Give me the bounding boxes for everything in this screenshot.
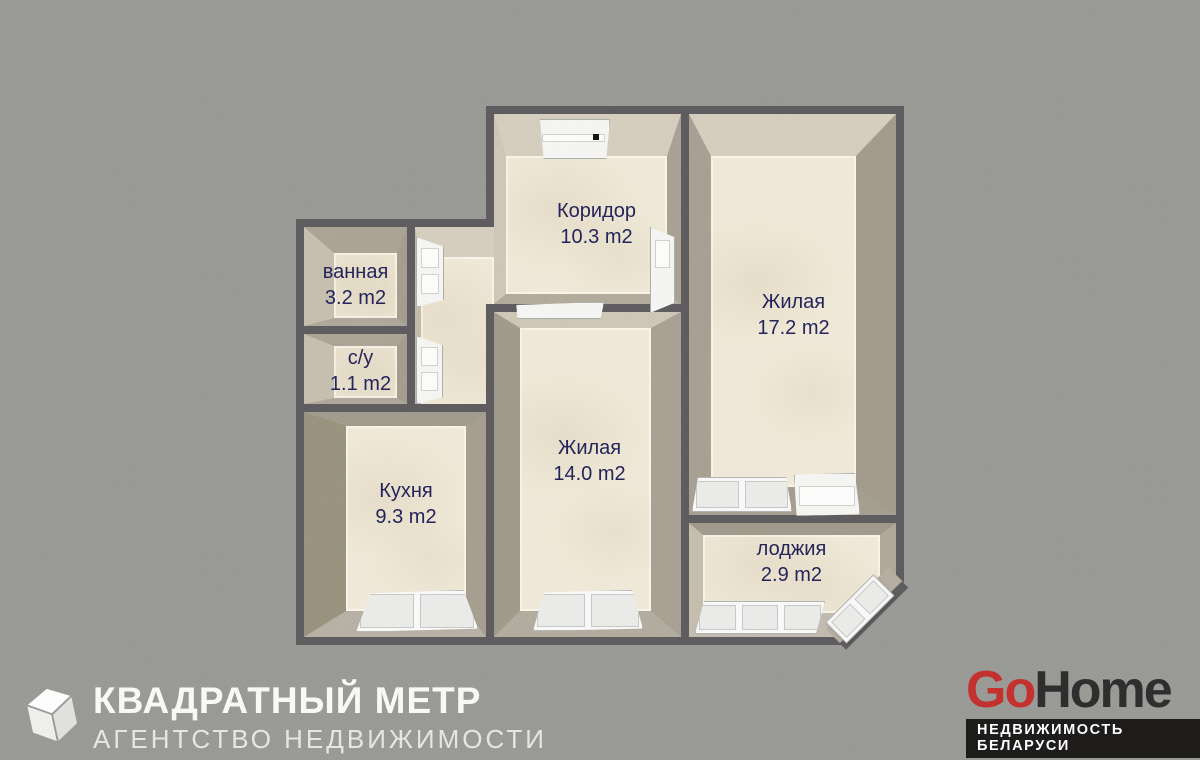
balcony-door	[794, 473, 860, 516]
room-name: Жилая	[553, 436, 625, 462]
room-area: 1.1 m2	[330, 372, 391, 398]
floor-plan-canvas: ванная 3.2 m2 с/у 1.1 m2 Коридор 10.3 m2	[0, 0, 1200, 760]
window-pane	[784, 605, 821, 630]
room-area: 14.0 m2	[553, 462, 625, 488]
room-name: Кухня	[375, 479, 436, 505]
room-label-living-14: Жилая 14.0 m2	[553, 436, 625, 487]
agency-subtitle: АГЕНТСТВО НЕДВИЖИМОСТИ	[93, 724, 547, 755]
room-living-17: Жилая 17.2 m2	[681, 106, 904, 523]
window-pane	[745, 481, 788, 508]
room-area: 2.9 m2	[757, 563, 827, 589]
room-label-bath: ванная 3.2 m2	[323, 260, 389, 311]
bath-door-panel	[421, 248, 439, 268]
room-area: 10.3 m2	[557, 225, 636, 251]
room-wc-floor: с/у 1.1 m2	[304, 334, 407, 404]
room-label-loggia: лоджия 2.9 m2	[757, 537, 827, 588]
window-pane	[420, 594, 474, 628]
window-pane	[696, 481, 739, 508]
room-label-wc: с/у 1.1 m2	[330, 346, 391, 397]
wc-door	[416, 336, 443, 404]
room-living-17-floor: Жилая 17.2 m2	[689, 114, 896, 515]
gohome-logo: GoHome НЕДВИЖИМОСТЬ БЕЛАРУСИ	[966, 664, 1200, 758]
door-handle	[593, 134, 599, 140]
room-area: 17.2 m2	[757, 316, 829, 342]
cube-icon	[19, 679, 86, 758]
room-label-living-17: Жилая 17.2 m2	[757, 290, 829, 341]
room-name: с/у	[330, 346, 391, 372]
loggia-window-strip	[695, 601, 825, 634]
room-area: 9.3 m2	[375, 505, 436, 531]
wc-door-panel	[421, 347, 438, 366]
room-label-kitchen: Кухня 9.3 m2	[375, 479, 436, 530]
window-pane	[742, 605, 779, 630]
kvadratny-metr-text: КВАДРАТНЫЙ МЕТР АГЕНТСТВО НЕДВИЖИМОСТИ	[93, 682, 547, 755]
gohome-title: GoHome	[966, 664, 1200, 716]
room-bath-floor: ванная 3.2 m2	[304, 227, 407, 326]
living-17-door	[650, 227, 675, 313]
room-area: 3.2 m2	[323, 286, 389, 312]
living-17-door-panel	[655, 240, 670, 268]
room-name: Жилая	[757, 290, 829, 316]
gohome-go: Go	[966, 661, 1034, 719]
living-17-window	[692, 477, 792, 512]
room-wc: с/у 1.1 m2	[296, 326, 415, 412]
room-living-14-floor: Жилая 14.0 m2	[494, 312, 681, 637]
kitchen-window	[356, 590, 478, 632]
living-14-window	[533, 590, 643, 631]
bath-door-panel	[421, 274, 439, 294]
wc-door-panel	[421, 372, 438, 391]
room-name: ванная	[323, 260, 389, 286]
room-name: лоджия	[757, 537, 827, 563]
agency-title: КВАДРАТНЫЙ МЕТР	[93, 682, 547, 721]
kvadratny-metr-logo: КВАДРАТНЫЙ МЕТР АГЕНТСТВО НЕДВИЖИМОСТИ	[26, 682, 547, 755]
room-label-corridor: Коридор 10.3 m2	[557, 199, 636, 250]
window-pane	[537, 594, 585, 627]
room-bath: ванная 3.2 m2	[296, 219, 415, 334]
entrance-door	[537, 119, 610, 159]
room-name: Коридор	[557, 199, 636, 225]
gohome-home: Home	[1034, 661, 1170, 719]
gohome-tagline: НЕДВИЖИМОСТЬ БЕЛАРУСИ	[966, 719, 1200, 758]
balcony-door-panel	[799, 486, 855, 506]
window-pane	[699, 605, 736, 630]
window-pane	[591, 594, 639, 627]
bath-door	[416, 237, 444, 307]
